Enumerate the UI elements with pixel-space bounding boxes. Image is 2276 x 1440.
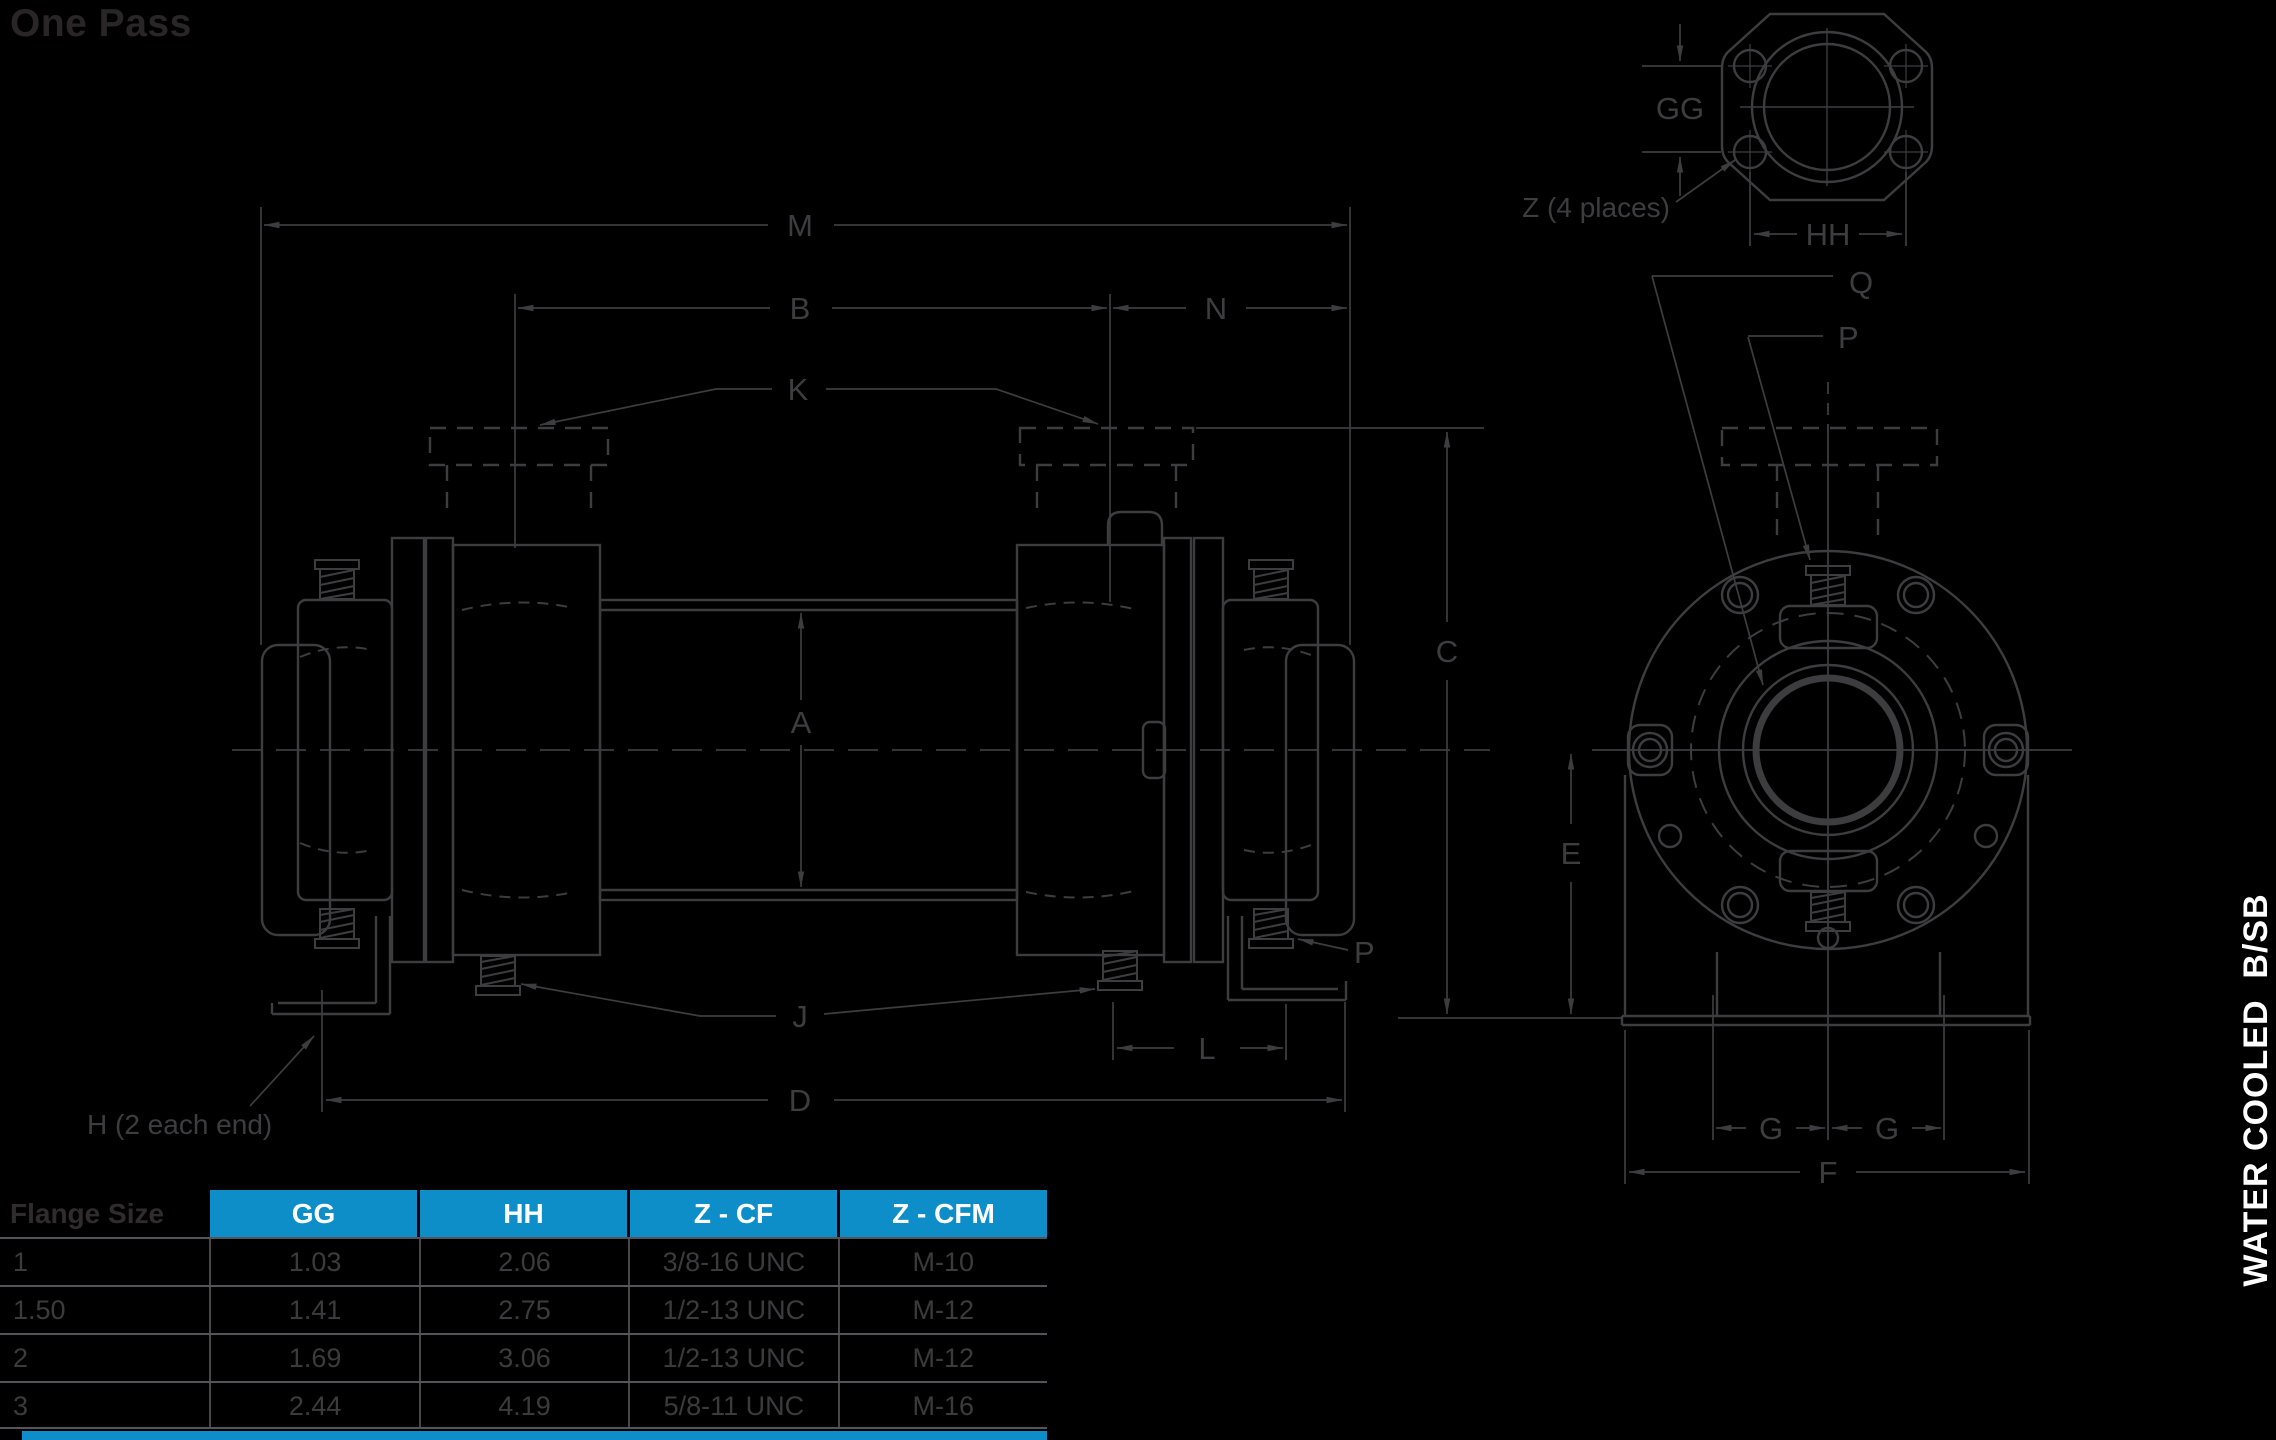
dim-label-b: B [790, 291, 811, 326]
dim-label-a: A [791, 705, 812, 740]
dim-label-g-left: G [1759, 1111, 1783, 1146]
table-cell: M-16 [838, 1383, 1047, 1427]
dim-label-q: Q [1849, 265, 1873, 300]
table-cell: 3/8-16 UNC [628, 1239, 837, 1285]
right-end-cap [1286, 645, 1354, 935]
table-col-z-cf: Z - CF [630, 1190, 837, 1237]
table-row: 3 2.44 4.19 5/8-11 UNC M-16 [0, 1381, 1047, 1429]
dim-label-l: L [1198, 1031, 1215, 1066]
table-header-row: Flange Size GG HH Z - CF Z - CFM [0, 1190, 1047, 1237]
dim-label-j: J [792, 999, 808, 1034]
vent-plug-icon [1249, 560, 1293, 599]
centerlines [232, 382, 2072, 1140]
drain-plug-icon [1249, 909, 1293, 948]
page: One Pass [0, 0, 2276, 1440]
table-cell-size: 2 [0, 1335, 209, 1381]
table-row: 1 1.03 2.06 3/8-16 UNC M-10 [0, 1237, 1047, 1285]
note-h: H (2 each end) [87, 1109, 272, 1140]
table-col-gg: GG [210, 1190, 417, 1237]
table-cell: 2.75 [419, 1287, 628, 1333]
table-cell-size: 3 [0, 1383, 209, 1427]
page-edge-tab-label: WATER COOLED B/SB [2236, 850, 2276, 1330]
table-cell: 2.06 [419, 1239, 628, 1285]
table-cell: 1.69 [209, 1335, 418, 1381]
table-col-z-cfm: Z - CFM [840, 1190, 1047, 1237]
shell-drain-plug-icon [476, 956, 520, 995]
dim-label-e: E [1561, 836, 1582, 871]
table-cell: M-12 [838, 1335, 1047, 1381]
dim-label-c: C [1436, 634, 1458, 669]
dim-label-g-right: G [1875, 1111, 1899, 1146]
table-cell: 1.03 [209, 1239, 418, 1285]
flange-detail [1722, 14, 1932, 200]
mounting-brackets [430, 428, 1937, 543]
dim-label-k: K [788, 372, 809, 407]
shell-drain-plug-icon [1098, 951, 1142, 990]
dim-label-hh: HH [1806, 217, 1851, 252]
left-end-cap [262, 645, 330, 935]
table-cell: 3.06 [419, 1335, 628, 1381]
table-row: 1.50 1.41 2.75 1/2-13 UNC M-12 [0, 1285, 1047, 1333]
flange-bolt-holes [1728, 44, 1928, 174]
dim-label-f: F [1819, 1155, 1838, 1190]
end-view [1622, 551, 2030, 1025]
dim-label-n: N [1205, 291, 1227, 326]
table-cell: 1/2-13 UNC [628, 1335, 837, 1381]
table-cell: 1.41 [209, 1287, 418, 1333]
table-cell: 4.19 [419, 1383, 628, 1427]
flange-size-table: Flange Size GG HH Z - CF Z - CFM 1 1.03 … [0, 1190, 1047, 1429]
dim-label-m: M [787, 208, 813, 243]
table-row-header: Flange Size [0, 1190, 210, 1237]
side-view [262, 512, 1354, 1014]
dim-label-gg: GG [1656, 91, 1704, 126]
dim-label-p-end: P [1838, 320, 1859, 355]
table-cell: M-12 [838, 1287, 1047, 1333]
drain-plug-icon [315, 909, 359, 948]
table-row: 2 1.69 3.06 1/2-13 UNC M-12 [0, 1333, 1047, 1381]
table-cell: 2.44 [209, 1383, 418, 1427]
note-z: Z (4 places) [1522, 192, 1670, 223]
shell-connection-boss [1108, 512, 1162, 545]
table-col-hh: HH [420, 1190, 627, 1237]
dim-label-p-side: P [1354, 935, 1375, 970]
table-cell-size: 1.50 [0, 1287, 209, 1333]
dim-label-d: D [789, 1083, 811, 1118]
table-cell: 5/8-11 UNC [628, 1383, 837, 1427]
table-cell-size: 1 [0, 1239, 209, 1285]
dimension-lines [250, 24, 2029, 1184]
vent-plug-icon [315, 560, 359, 599]
table-cell: M-10 [838, 1239, 1047, 1285]
table-cell: 1/2-13 UNC [628, 1287, 837, 1333]
pedestal-base [1622, 775, 2030, 1025]
next-table-header-bar [22, 1431, 1047, 1440]
left-foot-bracket [272, 916, 390, 1014]
